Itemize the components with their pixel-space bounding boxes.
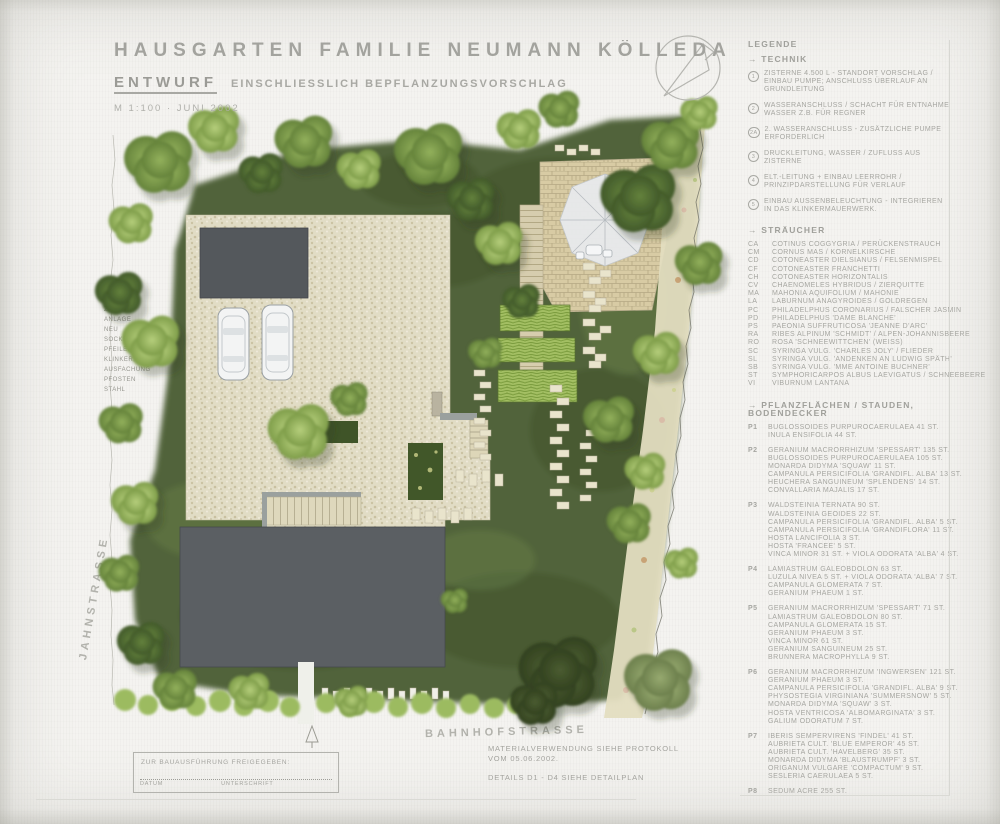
shrub-name: PAEONIA SUFFRUTICOSA 'JEANNE D'ARC': [772, 323, 928, 331]
planting-line: CAMPANULA PERSICIFOLIA 'GRANDIFL. ALBA' …: [768, 519, 959, 527]
shrub-abbr: ST: [748, 372, 768, 380]
shrub-row: CH COTONEASTER HORIZONTALIS: [748, 274, 950, 282]
planting-line: GERANIUM PHAEUM 3 ST.: [768, 677, 958, 685]
shrub-abbr: PD: [748, 315, 768, 323]
planting-line: GERANIUM PHAEUM 1 ST.: [768, 590, 957, 598]
planting-line: MONARDA DIDYMA 'SQUAW' 3 ST.: [768, 701, 958, 709]
fence-line: [645, 112, 703, 714]
planting-line: ORIGANUM VULGARE 'COMPACTUM' 9 ST.: [768, 765, 923, 773]
technik-text: ZISTERNE 4.500 L - STANDORT VORSCHLAG / …: [764, 70, 950, 94]
car: [262, 305, 293, 380]
tree-shadows: [100, 114, 729, 733]
shrub-abbr: VI: [748, 380, 768, 388]
legend-heading: LEGENDE: [748, 40, 950, 48]
planting-line: WALDSTEINIA GEOIDES 22 ST.: [768, 511, 959, 519]
planting-area-item: P7 IBERIS SEMPERVIRENS 'FINDEL' 41 ST.AU…: [748, 733, 950, 782]
shrub-row: SC SYRINGA VULG. 'CHARLES JOLY' / FLIEDE…: [748, 348, 950, 356]
planting-area-lines: GERANIUM MACRORRHIZUM 'SPESSART' 71 ST.L…: [768, 605, 945, 662]
lawn: [130, 115, 700, 705]
planting-line: HOSTA LANCIFOLIA 3 ST.: [768, 535, 959, 543]
fence-annotation: ZAUN-ANLAGENEUSOCKEL UNDPFEILERKLINKER,A…: [104, 305, 151, 395]
shrub-name: PHILADELPHUS CORONARIUS / FALSCHER JASMI…: [772, 307, 962, 315]
shrub-name: LABURNUM ANAGYROIDES / GOLDREGEN: [772, 298, 928, 306]
planting-area-item: P1 BUGLOSSOIDES PURPUROCAERULAEA 41 ST.I…: [748, 424, 950, 440]
planting-area-item: P2 GERANIUM MACRORRHIZUM 'SPESSART' 135 …: [748, 447, 950, 496]
shrub-abbr: CH: [748, 274, 768, 282]
planting-line: GERANIUM MACRORRHIZUM 'SPESSART' 71 ST.: [768, 605, 945, 613]
shrub-name: MAHONIA AQUIFOLIUM / MAHONIE: [772, 290, 899, 298]
planting-area-item: P6 GERANIUM MACRORRHIZUM 'INGWERSEN' 121…: [748, 669, 950, 726]
fence-annotation-line: AUSFACHUNG: [104, 365, 151, 375]
stamp-signature-label: UNTERSCHRIFT: [221, 781, 273, 787]
planting-area-code: P7: [748, 733, 764, 782]
shrub-row: PD PHILADELPHUS 'DAME BLANCHE': [748, 315, 950, 323]
tree-canopies: [95, 91, 723, 725]
planting-line: GALIUM ODORATUM 7 ST.: [768, 718, 958, 726]
legend-technik-item: 5 EINBAU AUSSENBELEUCHTUNG - INTEGRIEREN…: [748, 198, 950, 214]
planting-line: HOSTA VENTRICOSA 'ALBOMARGINATA' 3 ST.: [768, 710, 958, 718]
shrub-abbr: CV: [748, 282, 768, 290]
material-notes: MATERIALVERWENDUNG SIEHE PROTOKOLL VOM 0…: [488, 744, 679, 783]
perennial-border-strip: [604, 112, 706, 718]
plan-sheet: JAHNSTRASSE BAHNHOFSTRASSE ZAUN-ANLAGENE…: [0, 0, 1000, 824]
shrub-name: COTINUS COGGYGRIA / PERÜCKENSTRAUCH: [772, 241, 941, 249]
planting-line: HEUCHERA SANGUINEUM 'SPLENDENS' 14 ST.: [768, 479, 962, 487]
technik-text: EINBAU AUSSENBELEUCHTUNG - INTEGRIEREN I…: [764, 198, 950, 214]
shrub-name: CHAENOMELES HYBRIDUS / ZIERQUITTE: [772, 282, 924, 290]
legend-technik-item: 3 DRUCKLEITUNG, WASSER / ZUFLUSS AUS ZIS…: [748, 150, 950, 166]
technik-number-badge: 2A: [748, 127, 760, 138]
shrub-name: COTONEASTER FRANCHETTI: [772, 266, 880, 274]
fence-annotation-line: ANLAGE: [104, 315, 151, 325]
raised-beds: [321, 421, 443, 500]
page-title: HAUSGARTEN FAMILIE NEUMANN KÖLLEDA: [114, 40, 732, 62]
planting-line: LAMIASTRUM GALEOBDOLON 80 ST.: [768, 614, 945, 622]
material-note-line1: MATERIALVERWENDUNG SIEHE PROTOKOLL: [488, 744, 679, 754]
planting-area-code: P5: [748, 605, 764, 662]
shrub-abbr: CD: [748, 257, 768, 265]
planting-area-item: P5 GERANIUM MACRORRHIZUM 'SPESSART' 71 S…: [748, 605, 950, 662]
legend-shrubs-heading: → STRÄUCHER: [748, 226, 950, 234]
planting-line: INULA ENSIFOLIA 44 ST.: [768, 432, 939, 440]
fence-annotation-line: PFOSTEN: [104, 375, 151, 385]
shrub-abbr: CA: [748, 241, 768, 249]
planting-line: IBERIS SEMPERVIRENS 'FINDEL' 41 ST.: [768, 733, 923, 741]
planting-line: AUBRIETA CULT. 'HAVELBERG' 35 ST.: [768, 749, 923, 757]
planting-area-code: P1: [748, 424, 764, 440]
legend-planting-list: P1 BUGLOSSOIDES PURPUROCAERULAEA 41 ST.I…: [748, 424, 950, 797]
shrub-abbr: MA: [748, 290, 768, 298]
technik-number-badge: 5: [748, 199, 759, 210]
shrub-row: VI VIBURNUM LANTANA: [748, 380, 950, 388]
planting-line: PHYSOSTEGIA VIRGINIANA 'SUMMERSNOW' 5 ST…: [768, 693, 958, 701]
planting-area-lines: LAMIASTRUM GALEOBDOLON 63 ST.LUZULA NIVE…: [768, 566, 957, 598]
technik-number-badge: 4: [748, 175, 759, 186]
terrace-patio: [520, 158, 666, 373]
planting-area-lines: GERANIUM MACRORRHIZUM 'SPESSART' 135 ST.…: [768, 447, 962, 496]
shrub-row: CF COTONEASTER FRANCHETTI: [748, 266, 950, 274]
shrub-abbr: PS: [748, 323, 768, 331]
shrub-abbr: RO: [748, 339, 768, 347]
shrub-row: CD COTONEASTER DIELSIANUS / FELSENMISPEL: [748, 257, 950, 265]
planting-line: AUBRIETA CULT. 'BLUE EMPEROR' 45 ST.: [768, 741, 923, 749]
planting-area-code: P4: [748, 566, 764, 598]
garage-footprint: [200, 228, 308, 298]
entry-path: [298, 662, 314, 724]
stepping-stones: [322, 145, 611, 702]
planting-line: GERANIUM PHAEUM 3 ST.: [768, 630, 945, 638]
shrub-row: SB SYRINGA VULG. 'MME ANTOINE BUCHNER': [748, 364, 950, 372]
planting-line: LAMIASTRUM GALEOBDOLON 63 ST.: [768, 566, 957, 574]
sheet-bottom-rule: [36, 799, 636, 800]
fence-annotation-line: SOCKEL UND: [104, 335, 151, 345]
approval-stamp-text: ZUR BAUAUSFÜHRUNG FREIGEGEBEN:: [141, 759, 331, 766]
shrub-row: SL SYRINGA VULG. 'ANDENKEN AN LUDWIG SPÄ…: [748, 356, 950, 364]
technik-text: ELT.-LEITUNG + EINBAU LEERROHR / PRINZIP…: [764, 174, 950, 190]
shrub-abbr: SC: [748, 348, 768, 356]
shrub-row: PS PAEONIA SUFFRUTICOSA 'JEANNE D'ARC': [748, 323, 950, 331]
planting-area-item: P4 LAMIASTRUM GALEOBDOLON 63 ST.LUZULA N…: [748, 566, 950, 598]
house-footprint: [180, 527, 445, 667]
planting-line: WALDSTEINIA TERNATA 90 ST.: [768, 502, 959, 510]
planting-line: BUGLOSSOIDES PURPUROCAERULAEA 41 ST.: [768, 424, 939, 432]
planting-line: VINCA MINOR 31 ST. + VIOLA ODORATA 'ALBA…: [768, 551, 959, 559]
planting-line: CAMPANULA GLOMERATA 7 ST.: [768, 582, 957, 590]
title-entwurf: ENTWURF: [114, 74, 217, 94]
planting-line: CAMPANULA PERSICIFOLIA 'GRANDIFL. ALBA' …: [768, 685, 958, 693]
shrub-abbr: RA: [748, 331, 768, 339]
street-label-jahnstrasse: JAHNSTRASSE: [75, 523, 113, 673]
material-note-line2: VOM 05.06.2002.: [488, 754, 679, 764]
legend-frame-vertical-rule: [949, 40, 950, 795]
technik-text: WASSERANSCHLUSS / SCHACHT FÜR ENTNAHME W…: [764, 102, 950, 118]
technik-number-badge: 1: [748, 71, 759, 82]
planting-line: BRUNNERA MACROPHYLLA 9 ST.: [768, 654, 945, 662]
shrub-name: SYMPHORICARPOS ALBUS LAEVIGATUS / SCHNEE…: [772, 372, 986, 380]
fence-annotation-line: KLINKER,: [104, 355, 151, 365]
legend: LEGENDE → TECHNIK 1 ZISTERNE 4.500 L - S…: [748, 40, 950, 803]
legend-shrub-list: CA COTINUS COGGYGRIA / PERÜCKENSTRAUCH C…: [748, 241, 950, 389]
technik-number-badge: 2: [748, 103, 759, 114]
title-subtitle: EINSCHLIESSLICH BEPFLANZUNGSVORSCHLAG: [231, 78, 568, 90]
planting-area-code: P3: [748, 502, 764, 559]
shrub-abbr: CF: [748, 266, 768, 274]
approval-stamp-box: ZUR BAUAUSFÜHRUNG FREIGEGEBEN: DATUM UNT…: [133, 752, 339, 793]
fence-annotation-line: PFEILER: [104, 345, 151, 355]
shrub-name: VIBURNUM LANTANA: [772, 380, 849, 388]
shrub-abbr: CM: [748, 249, 768, 257]
title-block: HAUSGARTEN FAMILIE NEUMANN KÖLLEDA ENTWU…: [114, 40, 732, 114]
street-label-bahnhofstrasse: BAHNHOFSTRASSE: [425, 724, 588, 740]
shrub-abbr: PC: [748, 307, 768, 315]
shrub-name: COTONEASTER DIELSIANUS / FELSENMISPEL: [772, 257, 942, 265]
planting-line: LUZULA NIVEA 5 ST. + VIOLA ODORATA 'ALBA…: [768, 574, 957, 582]
technik-text: 2. WASSERANSCHLUSS - ZUSÄTZLICHE PUMPE E…: [765, 126, 950, 142]
fence-annotation-line: STAHL: [104, 385, 151, 395]
shrub-name: SYRINGA VULG. 'CHARLES JOLY' / FLIEDER: [772, 348, 933, 356]
stamp-date-label: DATUM: [140, 781, 163, 787]
shrub-row: PC PHILADELPHUS CORONARIUS / FALSCHER JA…: [748, 307, 950, 315]
wood-deck: [520, 205, 543, 373]
shrub-row: CM CORNUS MAS / KORNELKIRSCHE: [748, 249, 950, 257]
gravel-courtyard: [186, 215, 490, 527]
legend-planting-heading: → PFLANZFLÄCHEN / STAUDEN, BODENDECKER: [748, 401, 950, 417]
planting-line: CAMPANULA GLOMERATA 15 ST.: [768, 622, 945, 630]
wall-and-stairs: [432, 392, 488, 458]
shrub-abbr: SL: [748, 356, 768, 364]
planting-line: CAMPANULA PERSICIFOLIA 'GRANDIFLORA' 11 …: [768, 527, 959, 535]
shrub-row: MA MAHONIA AQUIFOLIUM / MAHONIE: [748, 290, 950, 298]
fence-annotation-line: NEU: [104, 325, 151, 335]
vegetable-beds: [498, 305, 577, 402]
shrub-abbr: LA: [748, 298, 768, 306]
planting-line: SESLERIA CAERULAEA 5 ST.: [768, 773, 923, 781]
technik-number-badge: 3: [748, 151, 759, 162]
planting-area-item: P3 WALDSTEINIA TERNATA 90 ST.WALDSTEINIA…: [748, 502, 950, 559]
fence-annotation-line: ZAUN-: [104, 305, 151, 315]
planting-line: GERANIUM SANGUINEUM 25 ST.: [768, 646, 945, 654]
legend-technik-heading: → TECHNIK: [748, 55, 950, 63]
fence-line-left: [110, 135, 115, 705]
planting-line: CONVALLARIA MAJALIS 17 ST.: [768, 487, 962, 495]
planting-area-lines: BUGLOSSOIDES PURPUROCAERULAEA 41 ST.INUL…: [768, 424, 939, 440]
legend-technik-item: 2 WASSERANSCHLUSS / SCHACHT FÜR ENTNAHME…: [748, 102, 950, 118]
shrub-row: RO ROSA 'SCHNEEWITTCHEN' (WEISS): [748, 339, 950, 347]
shrub-name: ROSA 'SCHNEEWITTCHEN' (WEISS): [772, 339, 903, 347]
planting-area-code: P6: [748, 669, 764, 726]
planting-area-code: P2: [748, 447, 764, 496]
car: [218, 308, 249, 380]
planting-area-lines: GERANIUM MACRORRHIZUM 'INGWERSEN' 121 ST…: [768, 669, 958, 726]
planting-line: VINCA MINOR 61 ST.: [768, 638, 945, 646]
planting-line: HOSTA 'FRANCEE' 5 ST.: [768, 543, 959, 551]
planting-area-lines: IBERIS SEMPERVIRENS 'FINDEL' 41 ST.AUBRI…: [768, 733, 923, 782]
shrub-row: CV CHAENOMELES HYBRIDUS / ZIERQUITTE: [748, 282, 950, 290]
shrub-name: RIBES ALPINUM 'SCHMIDT' / ALPEN-JOHANNIS…: [772, 331, 970, 339]
legend-technik-item: 4 ELT.-LEITUNG + EINBAU LEERROHR / PRINZ…: [748, 174, 950, 190]
legend-frame-bottom-rule: [740, 795, 950, 796]
shrub-name: SYRINGA VULG. 'MME ANTOINE BUCHNER': [772, 364, 930, 372]
legend-technik-list: 1 ZISTERNE 4.500 L - STANDORT VORSCHLAG …: [748, 70, 950, 214]
details-note-line: DETAILS D1 - D4 SIEHE DETAILPLAN: [488, 773, 679, 783]
planting-line: MONARDA DIDYMA 'BLAUSTRUMPF' 3 ST.: [768, 757, 923, 765]
planting-area-lines: WALDSTEINIA TERNATA 90 ST.WALDSTEINIA GE…: [768, 502, 959, 559]
shrub-row: RA RIBES ALPINUM 'SCHMIDT' / ALPEN-JOHAN…: [748, 331, 950, 339]
shrub-row: LA LABURNUM ANAGYROIDES / GOLDREGEN: [748, 298, 950, 306]
legend-technik-item: 2A 2. WASSERANSCHLUSS - ZUSÄTZLICHE PUMP…: [748, 126, 950, 142]
technik-text: DRUCKLEITUNG, WASSER / ZUFLUSS AUS ZISTE…: [764, 150, 950, 166]
planting-line: BUGLOSSOIDES PURPUROCAERULAEA 105 ST.: [768, 455, 962, 463]
planting-line: GERANIUM MACRORRHIZUM 'INGWERSEN' 121 ST…: [768, 669, 958, 677]
legend-technik-item: 1 ZISTERNE 4.500 L - STANDORT VORSCHLAG …: [748, 70, 950, 94]
garden-table-icon: [576, 245, 612, 259]
planting-line: MONARDA DIDYMA 'SQUAW' 11 ST.: [768, 463, 962, 471]
parasol-icon: [560, 174, 650, 266]
planting-line: GERANIUM MACRORRHIZUM 'SPESSART' 135 ST.: [768, 447, 962, 455]
planting-line: CAMPANULA PERSICIFOLIA 'GRANDIFL. ALBA' …: [768, 471, 962, 479]
scale-and-date: M 1:100 · JUNI 2002: [114, 103, 732, 114]
shrub-abbr: SB: [748, 364, 768, 372]
shrub-name: SYRINGA VULG. 'ANDENKEN AN LUDWIG SPÄTH': [772, 356, 952, 364]
hedge-row: [114, 689, 525, 718]
shrub-name: COTONEASTER HORIZONTALIS: [772, 274, 888, 282]
shrub-row: CA COTINUS COGGYGRIA / PERÜCKENSTRAUCH: [748, 241, 950, 249]
porch-steps: [262, 492, 361, 527]
gate-arrow-icon: [306, 726, 318, 748]
shrub-name: CORNUS MAS / KORNELKIRSCHE: [772, 249, 896, 257]
shrub-name: PHILADELPHUS 'DAME BLANCHE': [772, 315, 896, 323]
shrub-row: ST SYMPHORICARPOS ALBUS LAEVIGATUS / SCH…: [748, 372, 950, 380]
